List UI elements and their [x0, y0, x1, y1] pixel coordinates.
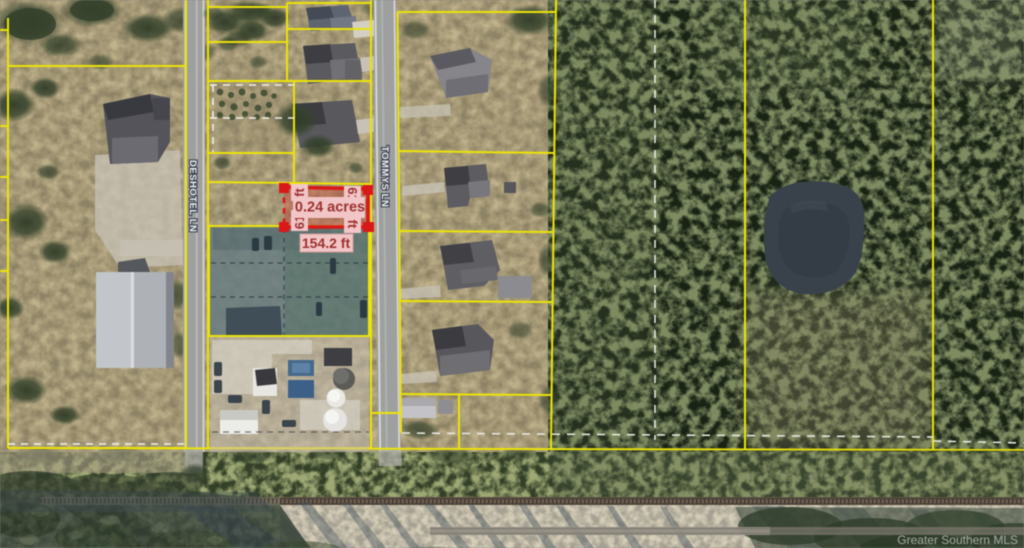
- svg-text:DESHOTEL LN: DESHOTEL LN: [187, 160, 198, 232]
- svg-text:0.24 acres: 0.24 acres: [295, 200, 365, 216]
- svg-text:TOMMYS LN: TOMMYS LN: [379, 146, 390, 207]
- svg-text:Greater Southern MLS: Greater Southern MLS: [897, 533, 1018, 547]
- svg-text:ft: ft: [345, 220, 360, 229]
- svg-text:154.2 ft: 154.2 ft: [302, 235, 351, 251]
- svg-text:ft: ft: [292, 188, 307, 197]
